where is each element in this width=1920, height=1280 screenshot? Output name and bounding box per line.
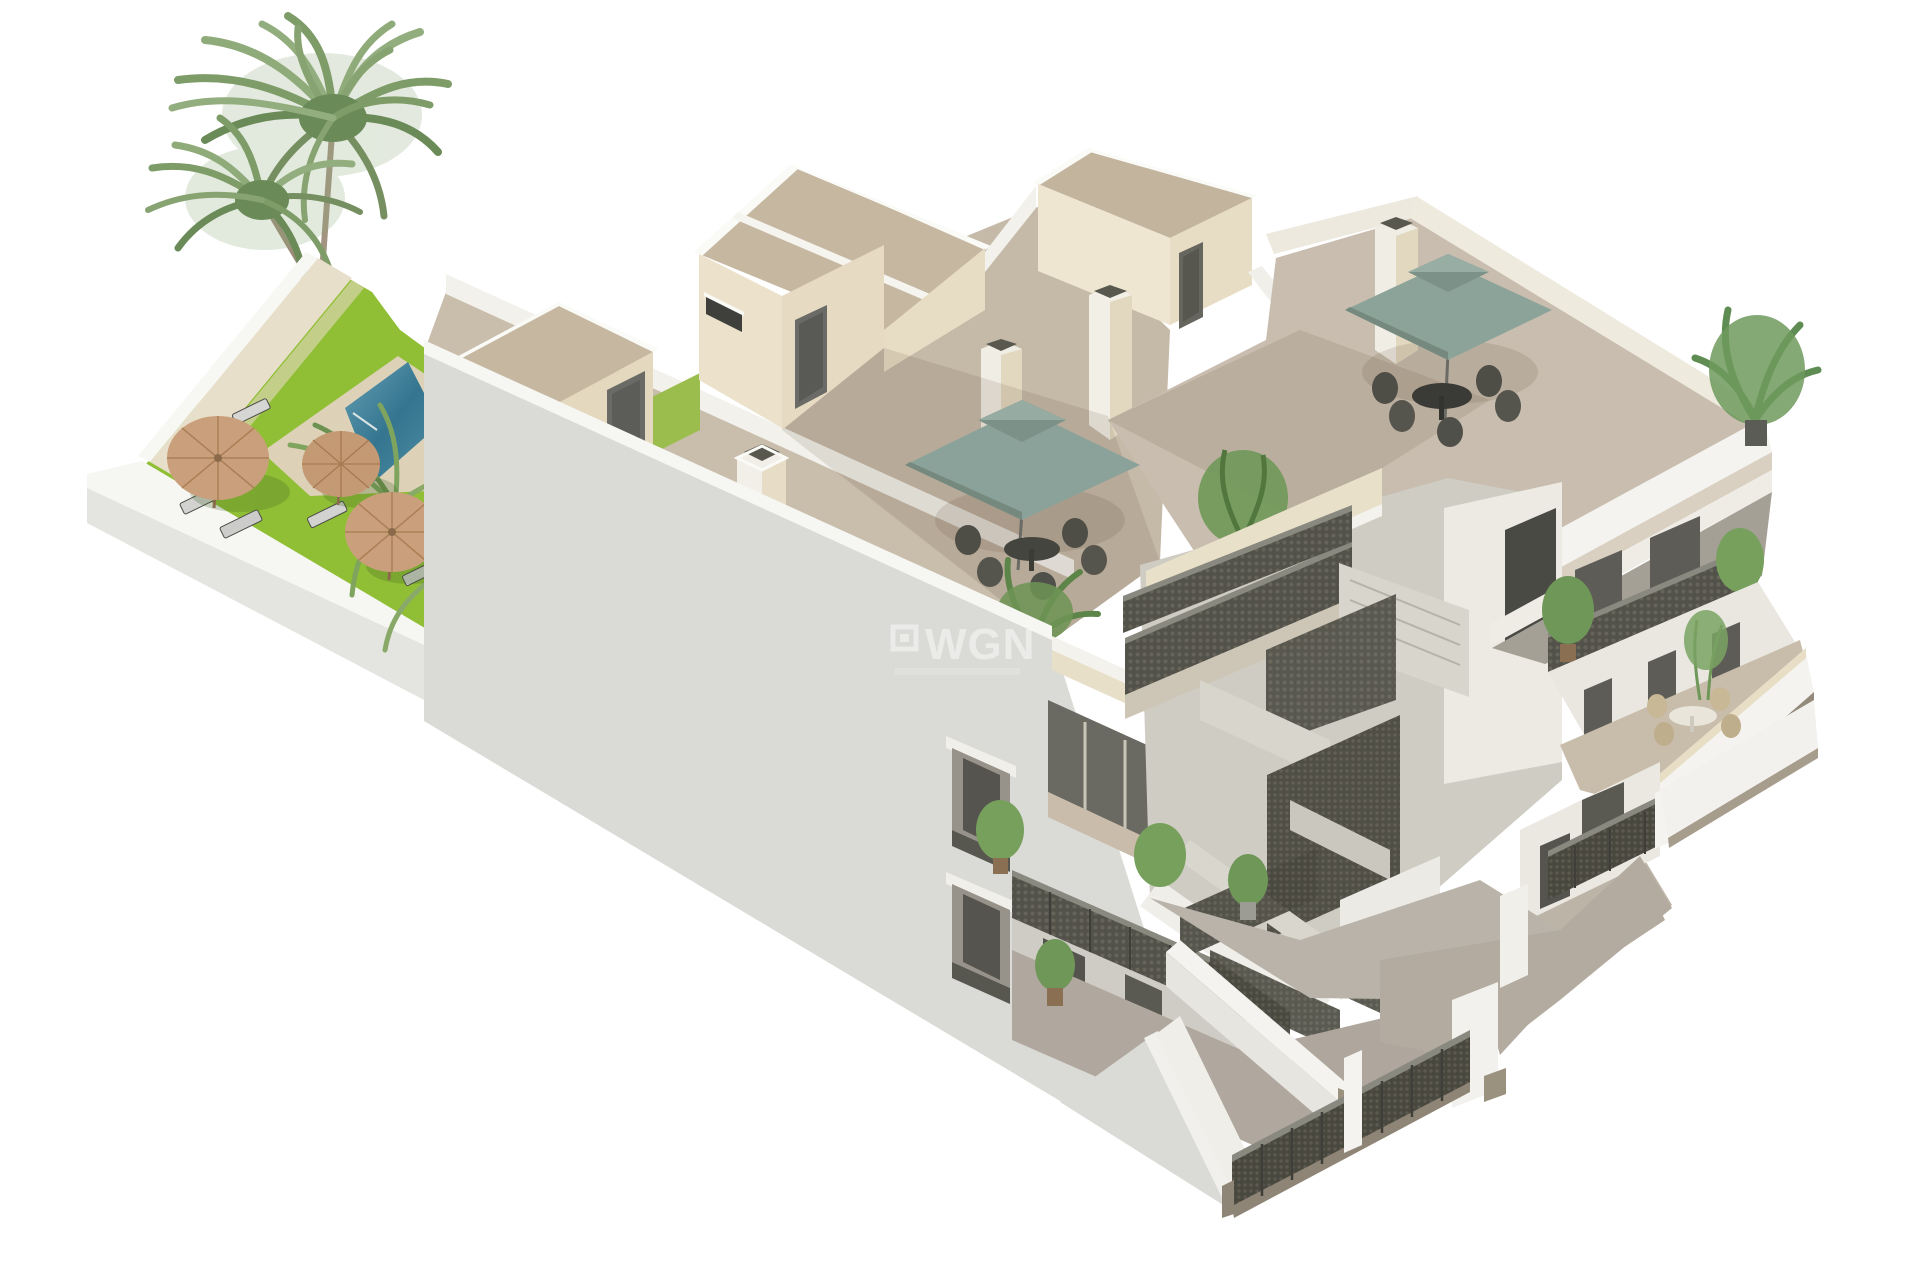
svg-text:WGN: WGN <box>925 620 1036 669</box>
